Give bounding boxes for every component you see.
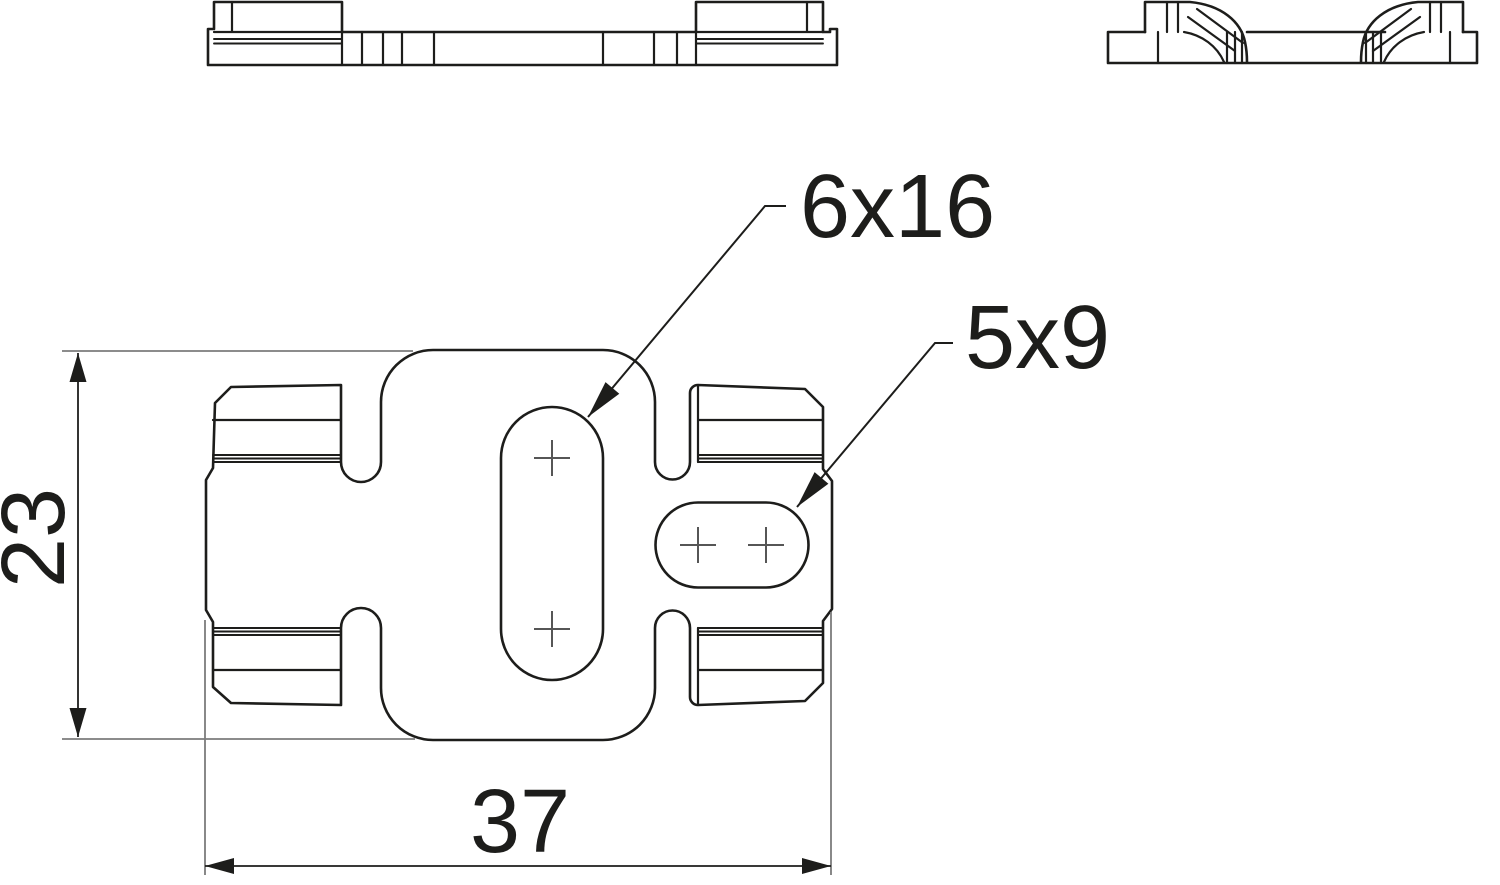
callout-label-6x16: 6x16 <box>800 157 995 257</box>
height-dimension-text: 23 <box>0 488 84 588</box>
leader-arrowhead-5x9 <box>797 472 828 507</box>
callout-label-5x9: 5x9 <box>965 288 1110 388</box>
slot-5x9 <box>656 503 809 588</box>
front-view <box>208 2 837 65</box>
side-view-bar <box>1108 32 1477 63</box>
height-extension-lines <box>62 351 415 739</box>
height-arrow-top <box>70 353 87 382</box>
side-view-right-flange-inner-arc <box>1384 32 1424 62</box>
technical-drawing-page: 6x16 5x9 23 37 <box>0 0 1500 885</box>
front-view-block-base-lines <box>214 2 823 32</box>
front-view-bend-lines <box>214 39 823 44</box>
width-arrow-right <box>802 858 831 874</box>
plan-view-outline <box>206 350 832 740</box>
front-view-outline <box>208 2 837 65</box>
plan-view-bend-lines <box>213 455 823 635</box>
leader-line-6x16 <box>588 206 786 417</box>
width-dimension-text: 37 <box>470 772 570 872</box>
callout-small-slot: 5x9 <box>797 288 1110 507</box>
drawing-svg: 6x16 5x9 23 37 <box>0 0 1500 885</box>
height-arrow-bottom <box>70 708 87 737</box>
side-view <box>1108 2 1477 63</box>
front-view-division-lines <box>342 32 696 65</box>
leader-arrowhead-6x16 <box>588 382 619 417</box>
plan-view <box>206 350 832 740</box>
width-dimension: 37 <box>205 612 831 875</box>
width-arrow-left <box>205 858 234 874</box>
side-view-left-flange <box>1145 2 1247 62</box>
plan-view-tab-edge-lines <box>213 385 823 705</box>
height-dimension: 23 <box>0 351 415 739</box>
side-view-left-flange-inner-arc <box>1184 32 1224 62</box>
